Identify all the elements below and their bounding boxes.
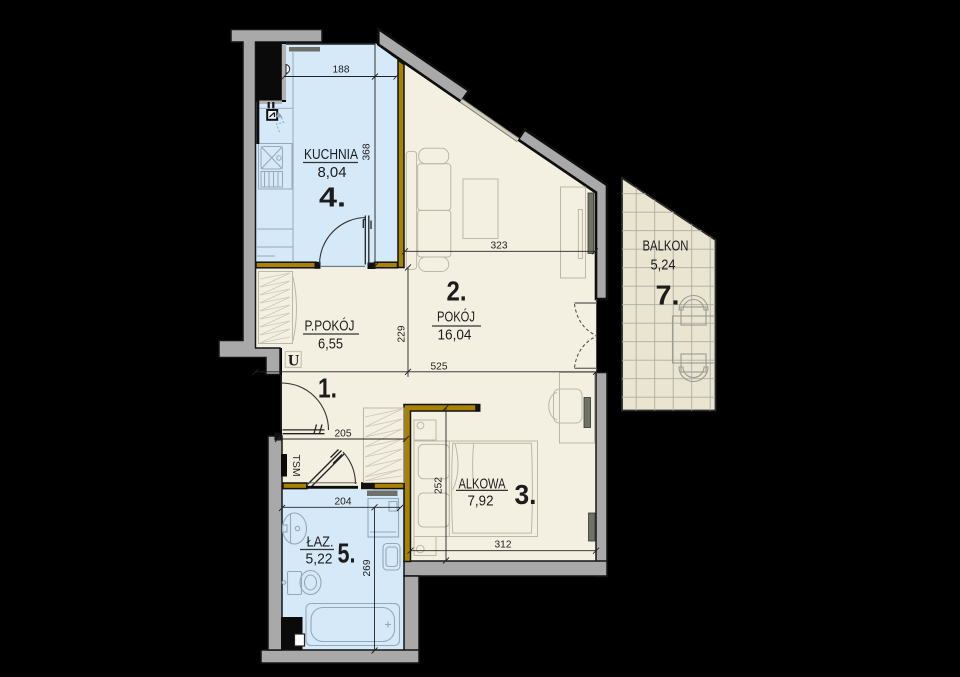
svg-text:525: 525 xyxy=(431,360,448,372)
svg-text:7,92: 7,92 xyxy=(468,493,494,510)
svg-text:368: 368 xyxy=(361,143,373,160)
svg-text:323: 323 xyxy=(491,240,508,252)
svg-text:252: 252 xyxy=(433,477,445,494)
svg-text:4.: 4. xyxy=(319,182,346,213)
svg-text:5.: 5. xyxy=(338,538,356,569)
svg-text:269: 269 xyxy=(361,559,373,576)
svg-text:1.: 1. xyxy=(318,373,337,404)
svg-text:TSM: TSM xyxy=(290,455,302,477)
svg-text:2.: 2. xyxy=(447,276,467,307)
svg-text:P.POKÓJ: P.POKÓJ xyxy=(305,318,355,335)
svg-text:8,04: 8,04 xyxy=(318,164,347,181)
svg-text:7.: 7. xyxy=(656,280,680,311)
svg-text:U: U xyxy=(288,353,300,370)
svg-text:KUCHNIA: KUCHNIA xyxy=(304,146,358,163)
svg-text:205: 205 xyxy=(335,428,352,440)
svg-text:ŁAZ.: ŁAZ. xyxy=(307,534,334,551)
svg-text:6,55: 6,55 xyxy=(318,336,343,353)
svg-text:229: 229 xyxy=(396,325,408,342)
svg-text:16,04: 16,04 xyxy=(438,327,472,344)
svg-text:188: 188 xyxy=(333,64,350,76)
svg-text:5,22: 5,22 xyxy=(306,551,333,568)
svg-text:312: 312 xyxy=(495,539,512,551)
svg-text:POKÓJ: POKÓJ xyxy=(437,309,475,326)
svg-text:BALKON: BALKON xyxy=(643,238,689,255)
svg-text:3.: 3. xyxy=(515,479,537,510)
svg-text:5,24: 5,24 xyxy=(651,257,676,274)
svg-text:204: 204 xyxy=(335,496,352,508)
